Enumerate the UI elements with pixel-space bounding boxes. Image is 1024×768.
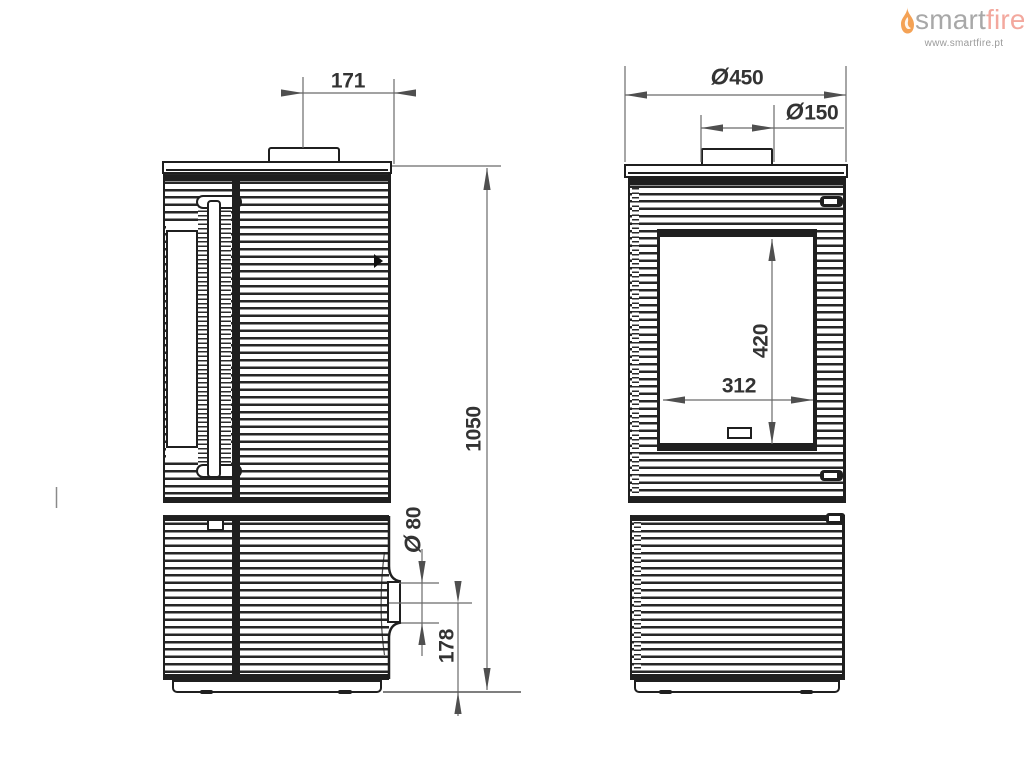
front-top-plate bbox=[624, 164, 848, 178]
front-hinge-bottom-slit bbox=[824, 473, 837, 478]
dim-label-glass-width: 312 bbox=[722, 376, 756, 397]
diameter-symbol: Ø bbox=[400, 536, 426, 554]
logo: smartfire www.smartfire.pt bbox=[893, 0, 1018, 55]
front-hinge-lower bbox=[826, 513, 845, 524]
front-lower-left-edge-shading bbox=[634, 522, 641, 670]
flame-icon bbox=[898, 7, 916, 34]
logo-wordmark: smartfire bbox=[915, 4, 1024, 36]
front-hinge-lower-slit bbox=[829, 516, 840, 521]
front-door-window bbox=[657, 229, 817, 451]
front-air-control-lever bbox=[727, 427, 752, 439]
dim-label-flue-offset: 171 bbox=[331, 71, 365, 92]
logo-text-fire: fire bbox=[986, 4, 1024, 35]
front-hinge-top bbox=[820, 196, 843, 207]
logo-website: www.smartfire.pt bbox=[921, 38, 1007, 49]
diameter-symbol: Ø bbox=[711, 64, 729, 90]
front-body-top-edge bbox=[628, 178, 846, 185]
front-top-plate-inner-line bbox=[628, 172, 844, 174]
dim-label-flue-diameter: Ø150 bbox=[786, 101, 839, 124]
front-hinge-top-slit bbox=[824, 199, 837, 204]
dim-label-glass-height: 420 bbox=[751, 324, 772, 358]
technical-drawing-page: 171 1050 Ø80 178 Ø450 Ø150 420 312 smart… bbox=[0, 0, 1024, 768]
front-foot-left bbox=[659, 690, 672, 694]
front-body-left-edge-shading bbox=[632, 188, 639, 494]
front-view bbox=[0, 0, 1024, 768]
front-foot-right bbox=[800, 690, 813, 694]
logo-text-smart: smart bbox=[915, 4, 986, 35]
dim-label-overall-height: 1050 bbox=[464, 406, 485, 452]
front-lower-top-edge bbox=[630, 516, 845, 521]
front-hinge-bottom bbox=[820, 470, 843, 481]
front-body-bottom-edge bbox=[628, 497, 846, 503]
front-lower-panel bbox=[630, 515, 845, 680]
dim-label-air-inlet-height: 178 bbox=[437, 629, 458, 663]
dim-label-overall-diameter: Ø450 bbox=[711, 66, 764, 89]
dim-label-air-inlet-diameter: Ø80 bbox=[402, 507, 425, 553]
diameter-symbol: Ø bbox=[786, 99, 804, 125]
